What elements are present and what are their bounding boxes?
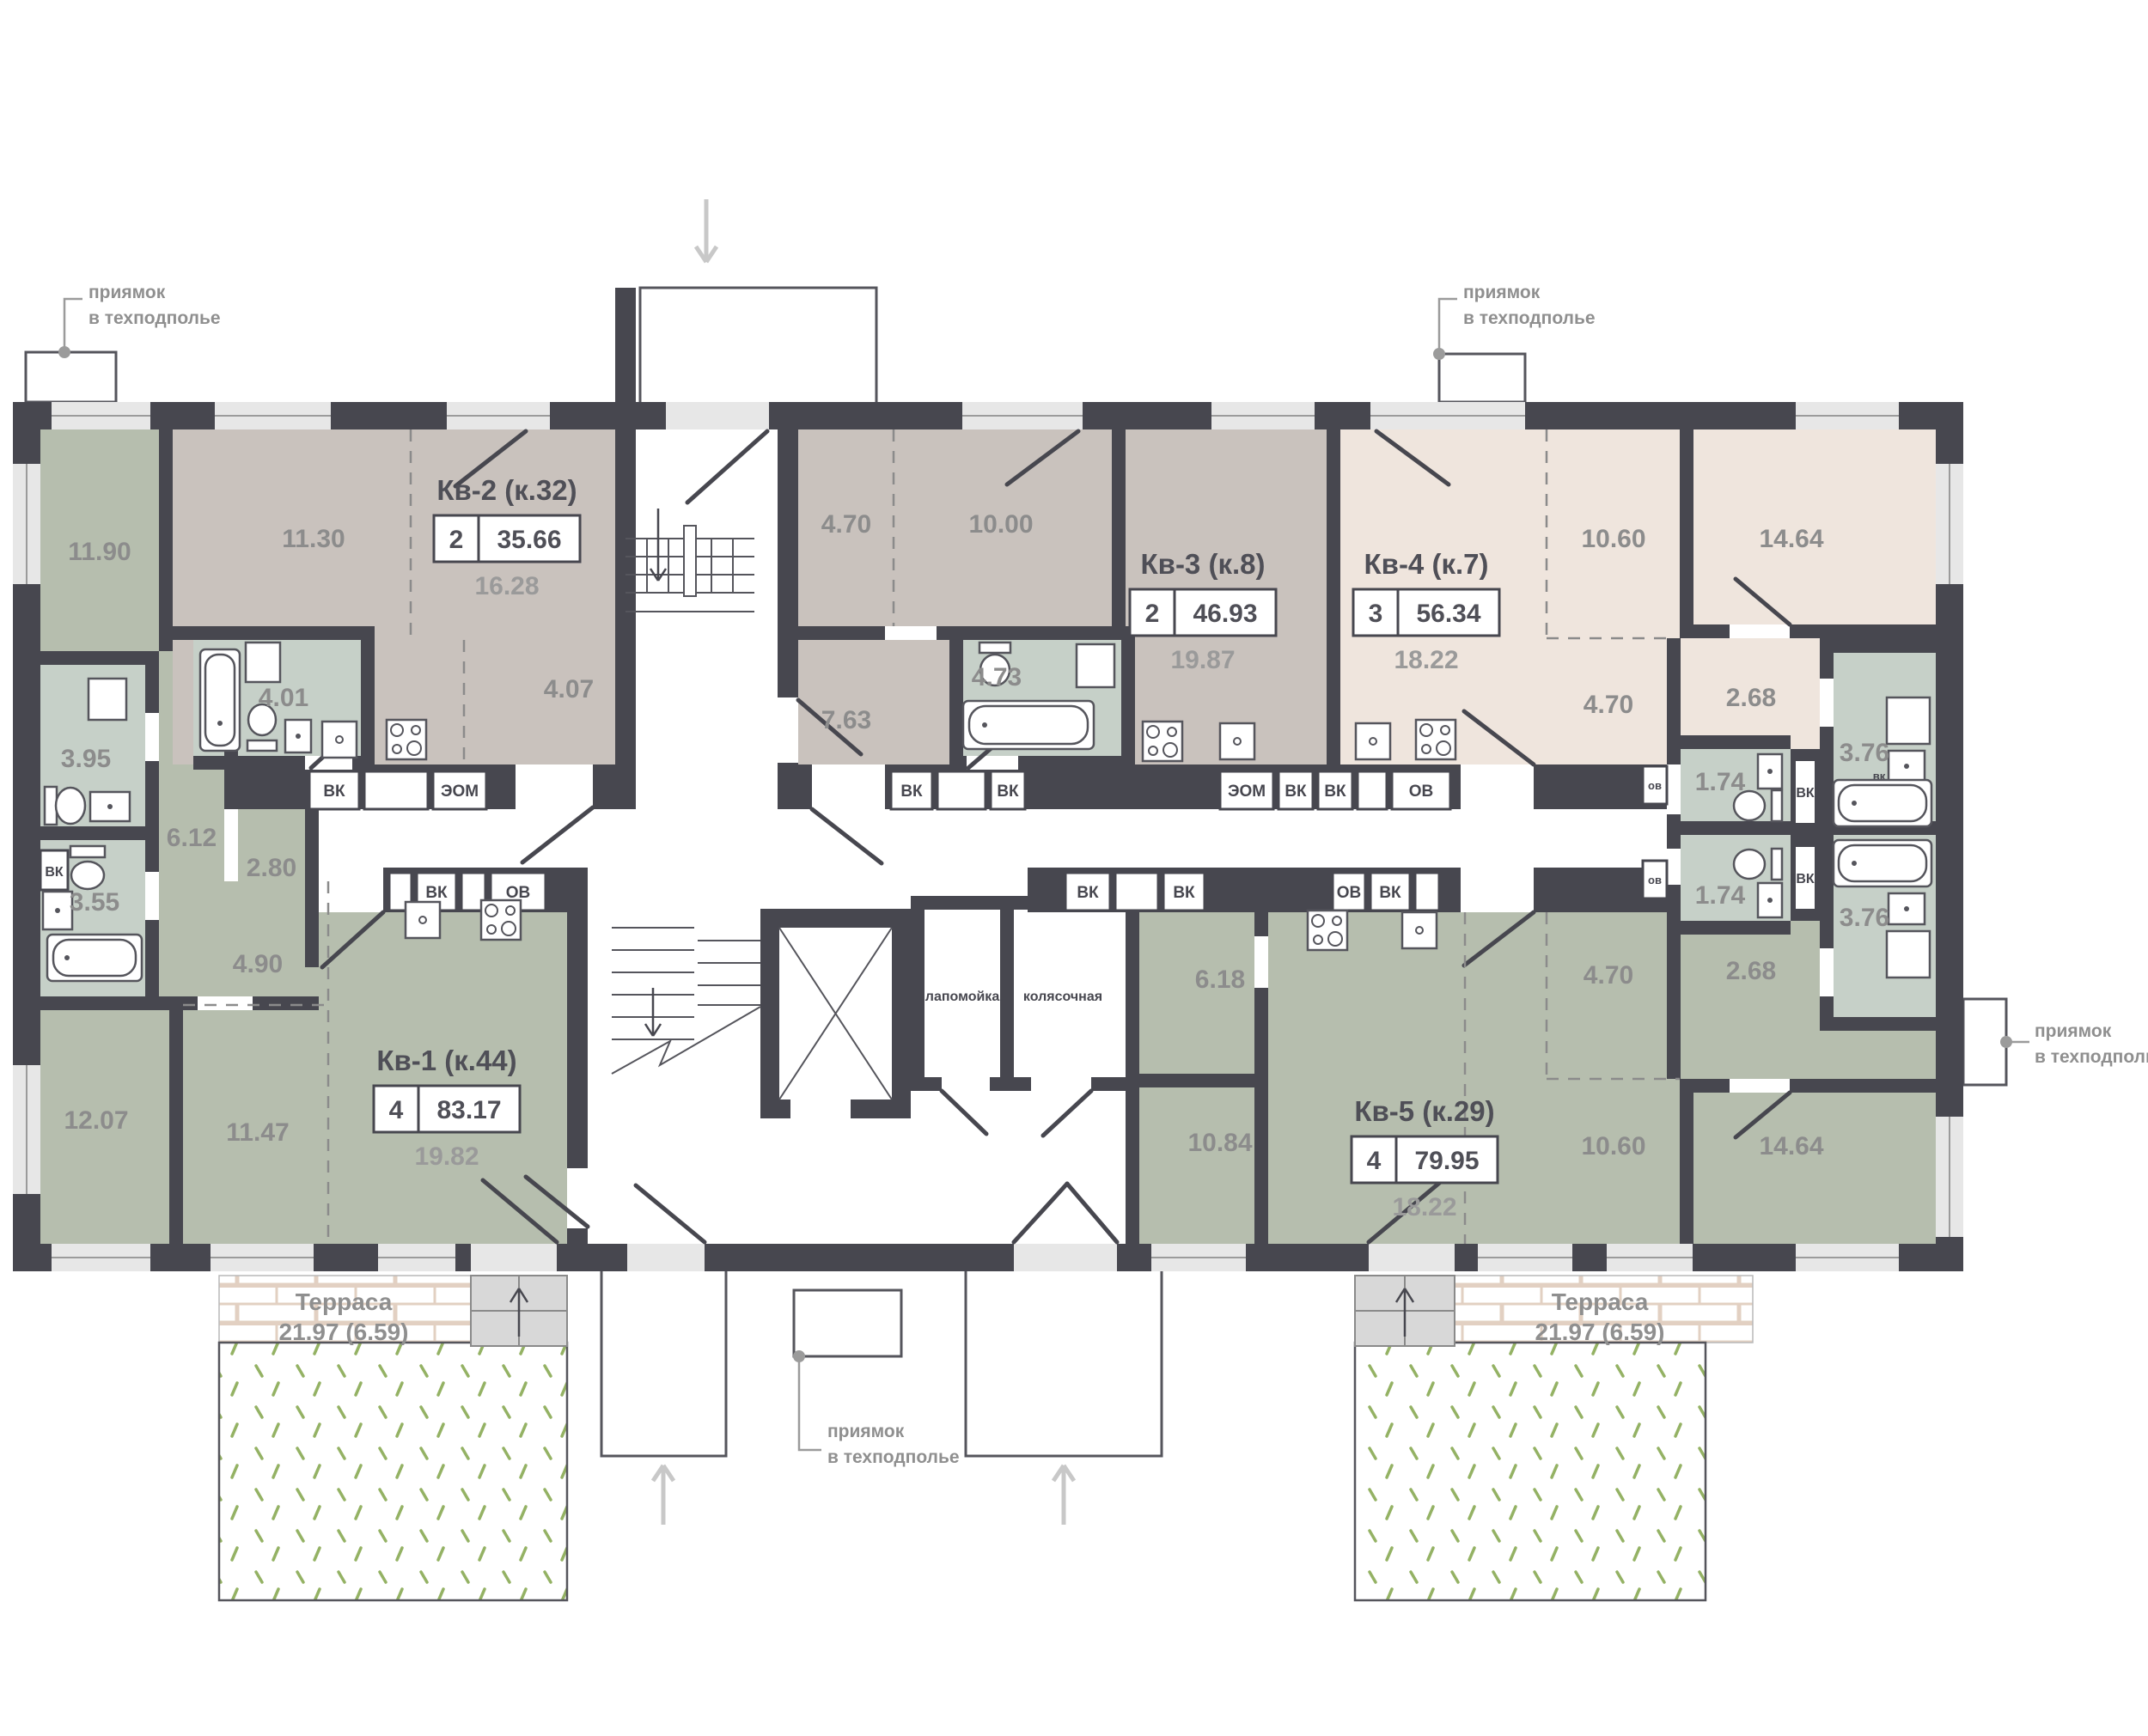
terrace-door-kv1 bbox=[471, 1244, 557, 1271]
window bbox=[13, 464, 40, 584]
area-kv5-1464: 14.64 bbox=[1759, 1132, 1823, 1160]
window bbox=[52, 402, 150, 429]
floor-plan-image: приямок в техподполье приямок в техподпо… bbox=[0, 0, 2148, 1736]
window bbox=[1211, 402, 1315, 429]
sink-icon bbox=[1889, 893, 1925, 924]
sink-icon bbox=[1356, 723, 1390, 759]
entrance-arrow-down-icon bbox=[696, 199, 717, 262]
area-kv4-1464: 14.64 bbox=[1759, 525, 1823, 553]
door-stroller bbox=[1031, 1077, 1091, 1091]
door-bath-395 bbox=[145, 713, 159, 761]
stove-icon bbox=[1416, 720, 1455, 759]
label-paw-wash: лапомойка bbox=[925, 990, 1000, 1004]
window bbox=[1796, 402, 1899, 429]
pit-label-line1: приямок bbox=[2035, 1021, 2112, 1041]
area-kv1-490: 4.90 bbox=[233, 950, 283, 978]
door-618 bbox=[1254, 936, 1268, 988]
area-kv5-470: 4.70 bbox=[1584, 961, 1633, 990]
niche-eom: ЭОМ bbox=[441, 783, 479, 801]
toilet-icon bbox=[70, 846, 105, 889]
area-kv4-174: 1.74 bbox=[1695, 768, 1746, 796]
rooms-count: 3 bbox=[1369, 600, 1383, 628]
rooms-count: 2 bbox=[1145, 600, 1160, 628]
door-kv2 bbox=[516, 764, 593, 809]
washer-icon bbox=[246, 643, 280, 682]
sink-icon bbox=[43, 892, 72, 929]
door-kv3 bbox=[812, 764, 885, 809]
niche-vk: ВК bbox=[1285, 783, 1307, 801]
door-kv4 bbox=[1461, 764, 1534, 809]
area-kv5-1060: 10.60 bbox=[1581, 1132, 1645, 1160]
sink-icon bbox=[322, 722, 357, 758]
pit-label-line1: приямок bbox=[88, 283, 166, 302]
window bbox=[211, 1244, 314, 1271]
door-470-kv3 bbox=[885, 626, 937, 640]
rooms-count: 2 bbox=[449, 526, 464, 554]
door-stairwell bbox=[778, 697, 798, 763]
niche-ov-small: ов bbox=[1648, 874, 1662, 886]
window bbox=[1478, 1244, 1572, 1271]
pit-top-left: приямок в техподполье bbox=[26, 283, 221, 402]
window bbox=[962, 402, 1083, 429]
washer-icon bbox=[1887, 697, 1930, 744]
area-kv5-376: 3.76 bbox=[1840, 904, 1889, 932]
area-kv3-473: 4.73 bbox=[972, 663, 1022, 691]
apartment-title: Кв-2 (к.32) bbox=[436, 474, 577, 506]
area-kv3-470: 4.70 bbox=[821, 510, 871, 539]
living-area: 18.22 bbox=[1392, 1193, 1456, 1221]
door-bath-355 bbox=[145, 872, 159, 920]
area-kv5-268: 2.68 bbox=[1726, 957, 1776, 985]
pit-top-right: приямок в техподполье bbox=[1433, 283, 1596, 402]
terrace-name: Терраса bbox=[296, 1288, 393, 1315]
window bbox=[13, 1065, 40, 1194]
niche-ov: ОВ bbox=[1409, 783, 1434, 801]
door-376-kv4 bbox=[1820, 679, 1834, 727]
terrace-right: Терраса 21.97 (6.59) bbox=[1355, 1276, 1753, 1600]
terrace-name: Терраса bbox=[1552, 1288, 1649, 1315]
shaft-vk-kv4: ВК bbox=[1796, 786, 1815, 801]
area-kv4-1060: 10.60 bbox=[1581, 525, 1645, 553]
sink-icon bbox=[1402, 912, 1437, 948]
area-kv1-612: 6.12 bbox=[167, 824, 217, 852]
niche-vk-kv1: ВК bbox=[45, 865, 64, 880]
niche-ov-small: ов bbox=[1648, 779, 1662, 792]
floor-plan-svg: приямок в техподполье приямок в техподпо… bbox=[0, 0, 2148, 1736]
living-area: 19.82 bbox=[414, 1142, 479, 1171]
pit-label-line1: приямок bbox=[1463, 283, 1541, 302]
porch-bottom-left bbox=[601, 1271, 726, 1525]
pit-label-line2: в техподполье bbox=[2035, 1047, 2148, 1067]
label-stroller: колясочная bbox=[1023, 990, 1102, 1004]
sink-icon bbox=[285, 720, 311, 752]
bathtub-icon bbox=[963, 701, 1094, 749]
stove-icon bbox=[1308, 911, 1347, 950]
niche-vk: ВК bbox=[1173, 884, 1195, 902]
apartment-title: Кв-1 (к.44) bbox=[376, 1045, 516, 1076]
door-1464-kv5 bbox=[1730, 1079, 1790, 1093]
entrance-porch-top bbox=[640, 199, 876, 402]
shaft-vk-kv5: ВК bbox=[1796, 872, 1815, 886]
stove-icon bbox=[1143, 722, 1182, 761]
living-area: 19.87 bbox=[1170, 646, 1235, 674]
bathtub-icon bbox=[47, 935, 142, 981]
niche-vk: ВК bbox=[1077, 884, 1099, 902]
pit-bottom-center: приямок в техподполье bbox=[793, 1290, 960, 1467]
toilet-icon bbox=[45, 787, 85, 825]
window bbox=[1607, 1244, 1693, 1271]
door-wc-kv5 bbox=[1667, 849, 1681, 885]
niche-vk: ВК bbox=[1379, 884, 1401, 902]
area-kv3-763: 7.63 bbox=[821, 706, 871, 734]
window bbox=[1151, 1244, 1246, 1271]
area-kv5-1084: 10.84 bbox=[1187, 1129, 1252, 1157]
apartment-title: Кв-4 (к.7) bbox=[1364, 548, 1489, 580]
porch-bottom-right bbox=[966, 1271, 1162, 1525]
area-kv5-174: 1.74 bbox=[1695, 881, 1746, 910]
bathtub-icon bbox=[1834, 780, 1931, 826]
door-wc-kv4 bbox=[1667, 764, 1681, 814]
door-kv5 bbox=[1461, 868, 1534, 912]
area-kv4-376: 3.76 bbox=[1840, 739, 1889, 767]
area-kv2-407: 4.07 bbox=[544, 675, 594, 704]
total-area: 79.95 bbox=[1414, 1147, 1479, 1175]
entrance-door-main bbox=[1014, 1244, 1117, 1271]
window bbox=[1936, 1117, 1963, 1237]
area-kv1-1190: 11.90 bbox=[68, 538, 131, 566]
area-kv3-1000: 10.00 bbox=[968, 510, 1033, 539]
area-kv4-268: 2.68 bbox=[1726, 684, 1776, 712]
niche-vk: ВК bbox=[323, 783, 345, 801]
niche-eom: ЭОМ bbox=[1228, 783, 1266, 801]
terrace-door-kv5 bbox=[1369, 1244, 1455, 1271]
rooms-count: 4 bbox=[1367, 1147, 1382, 1175]
window bbox=[1439, 402, 1525, 429]
terrace-area: 21.97 (6.59) bbox=[279, 1319, 409, 1345]
area-kv1-1207: 12.07 bbox=[64, 1106, 128, 1135]
area-kv1-280: 2.80 bbox=[247, 854, 296, 882]
pit-label-line1: приямок bbox=[827, 1422, 905, 1441]
window bbox=[52, 1244, 150, 1271]
rooms-count: 4 bbox=[389, 1096, 404, 1124]
sink-icon bbox=[90, 792, 130, 821]
door-376-kv5 bbox=[1820, 948, 1834, 996]
window bbox=[215, 402, 331, 429]
terrace-left: Терраса 21.97 (6.59) bbox=[219, 1276, 567, 1600]
stove-icon bbox=[481, 900, 521, 940]
entrance-door-top bbox=[666, 402, 769, 429]
terrace-area: 21.97 (6.59) bbox=[1535, 1319, 1665, 1345]
pit-label-line2: в техподполье bbox=[1463, 308, 1596, 328]
elevator bbox=[779, 928, 892, 1118]
entrance-arrow-up-icon bbox=[1053, 1465, 1074, 1525]
total-area: 56.34 bbox=[1416, 600, 1480, 628]
door-pawwash bbox=[942, 1077, 990, 1091]
porch-door-left bbox=[627, 1244, 705, 1271]
total-area: 83.17 bbox=[436, 1096, 501, 1124]
pit-label-line2: в техподполье bbox=[827, 1447, 960, 1467]
area-kv1-395: 3.95 bbox=[61, 745, 111, 773]
apartment-title: Кв-3 (к.8) bbox=[1141, 548, 1266, 580]
washer-icon bbox=[1077, 644, 1114, 687]
sink-icon bbox=[1758, 754, 1782, 789]
area-kv2-401: 4.01 bbox=[259, 684, 308, 712]
sink-icon bbox=[1220, 723, 1254, 759]
apartment-title: Кв-5 (к.29) bbox=[1354, 1095, 1494, 1127]
area-kv2-1130: 11.30 bbox=[282, 525, 345, 553]
washer-icon bbox=[88, 679, 126, 720]
sink-icon bbox=[406, 902, 440, 938]
niche-vk: ВК bbox=[997, 783, 1019, 801]
washer-icon bbox=[1887, 931, 1930, 978]
corridor bbox=[305, 809, 1667, 868]
living-area: 16.28 bbox=[474, 572, 539, 600]
pit-label-line2: в техподполье bbox=[88, 308, 221, 328]
sink-icon bbox=[1758, 883, 1782, 917]
pit-right: приямок в техподполье bbox=[1963, 999, 2148, 1085]
area-kv1-1147: 11.47 bbox=[226, 1118, 289, 1147]
total-area: 46.93 bbox=[1193, 600, 1257, 628]
sink-icon bbox=[1889, 751, 1925, 782]
bathtub-icon bbox=[200, 649, 240, 751]
niche-vk: ВК bbox=[425, 884, 448, 902]
stove-icon bbox=[387, 720, 426, 759]
area-kv1-355: 3.55 bbox=[70, 888, 119, 917]
living-area: 18.22 bbox=[1394, 646, 1458, 674]
door-hall-kv1 bbox=[198, 996, 253, 1010]
entrance-arrow-up-icon bbox=[653, 1465, 674, 1525]
toilet-icon bbox=[1734, 849, 1782, 880]
window bbox=[378, 1244, 455, 1271]
window bbox=[1936, 464, 1963, 584]
door-1464-kv4 bbox=[1730, 624, 1790, 638]
total-area: 35.66 bbox=[497, 526, 561, 554]
area-kv4-470: 4.70 bbox=[1584, 691, 1633, 719]
niche-vk: ВК bbox=[900, 783, 923, 801]
niche-ov: ОВ bbox=[1337, 884, 1362, 902]
niche-vk: ВК bbox=[1324, 783, 1346, 801]
window bbox=[447, 402, 550, 429]
window bbox=[1796, 1244, 1899, 1271]
area-kv5-618: 6.18 bbox=[1195, 965, 1245, 994]
bathtub-icon bbox=[1834, 840, 1931, 886]
